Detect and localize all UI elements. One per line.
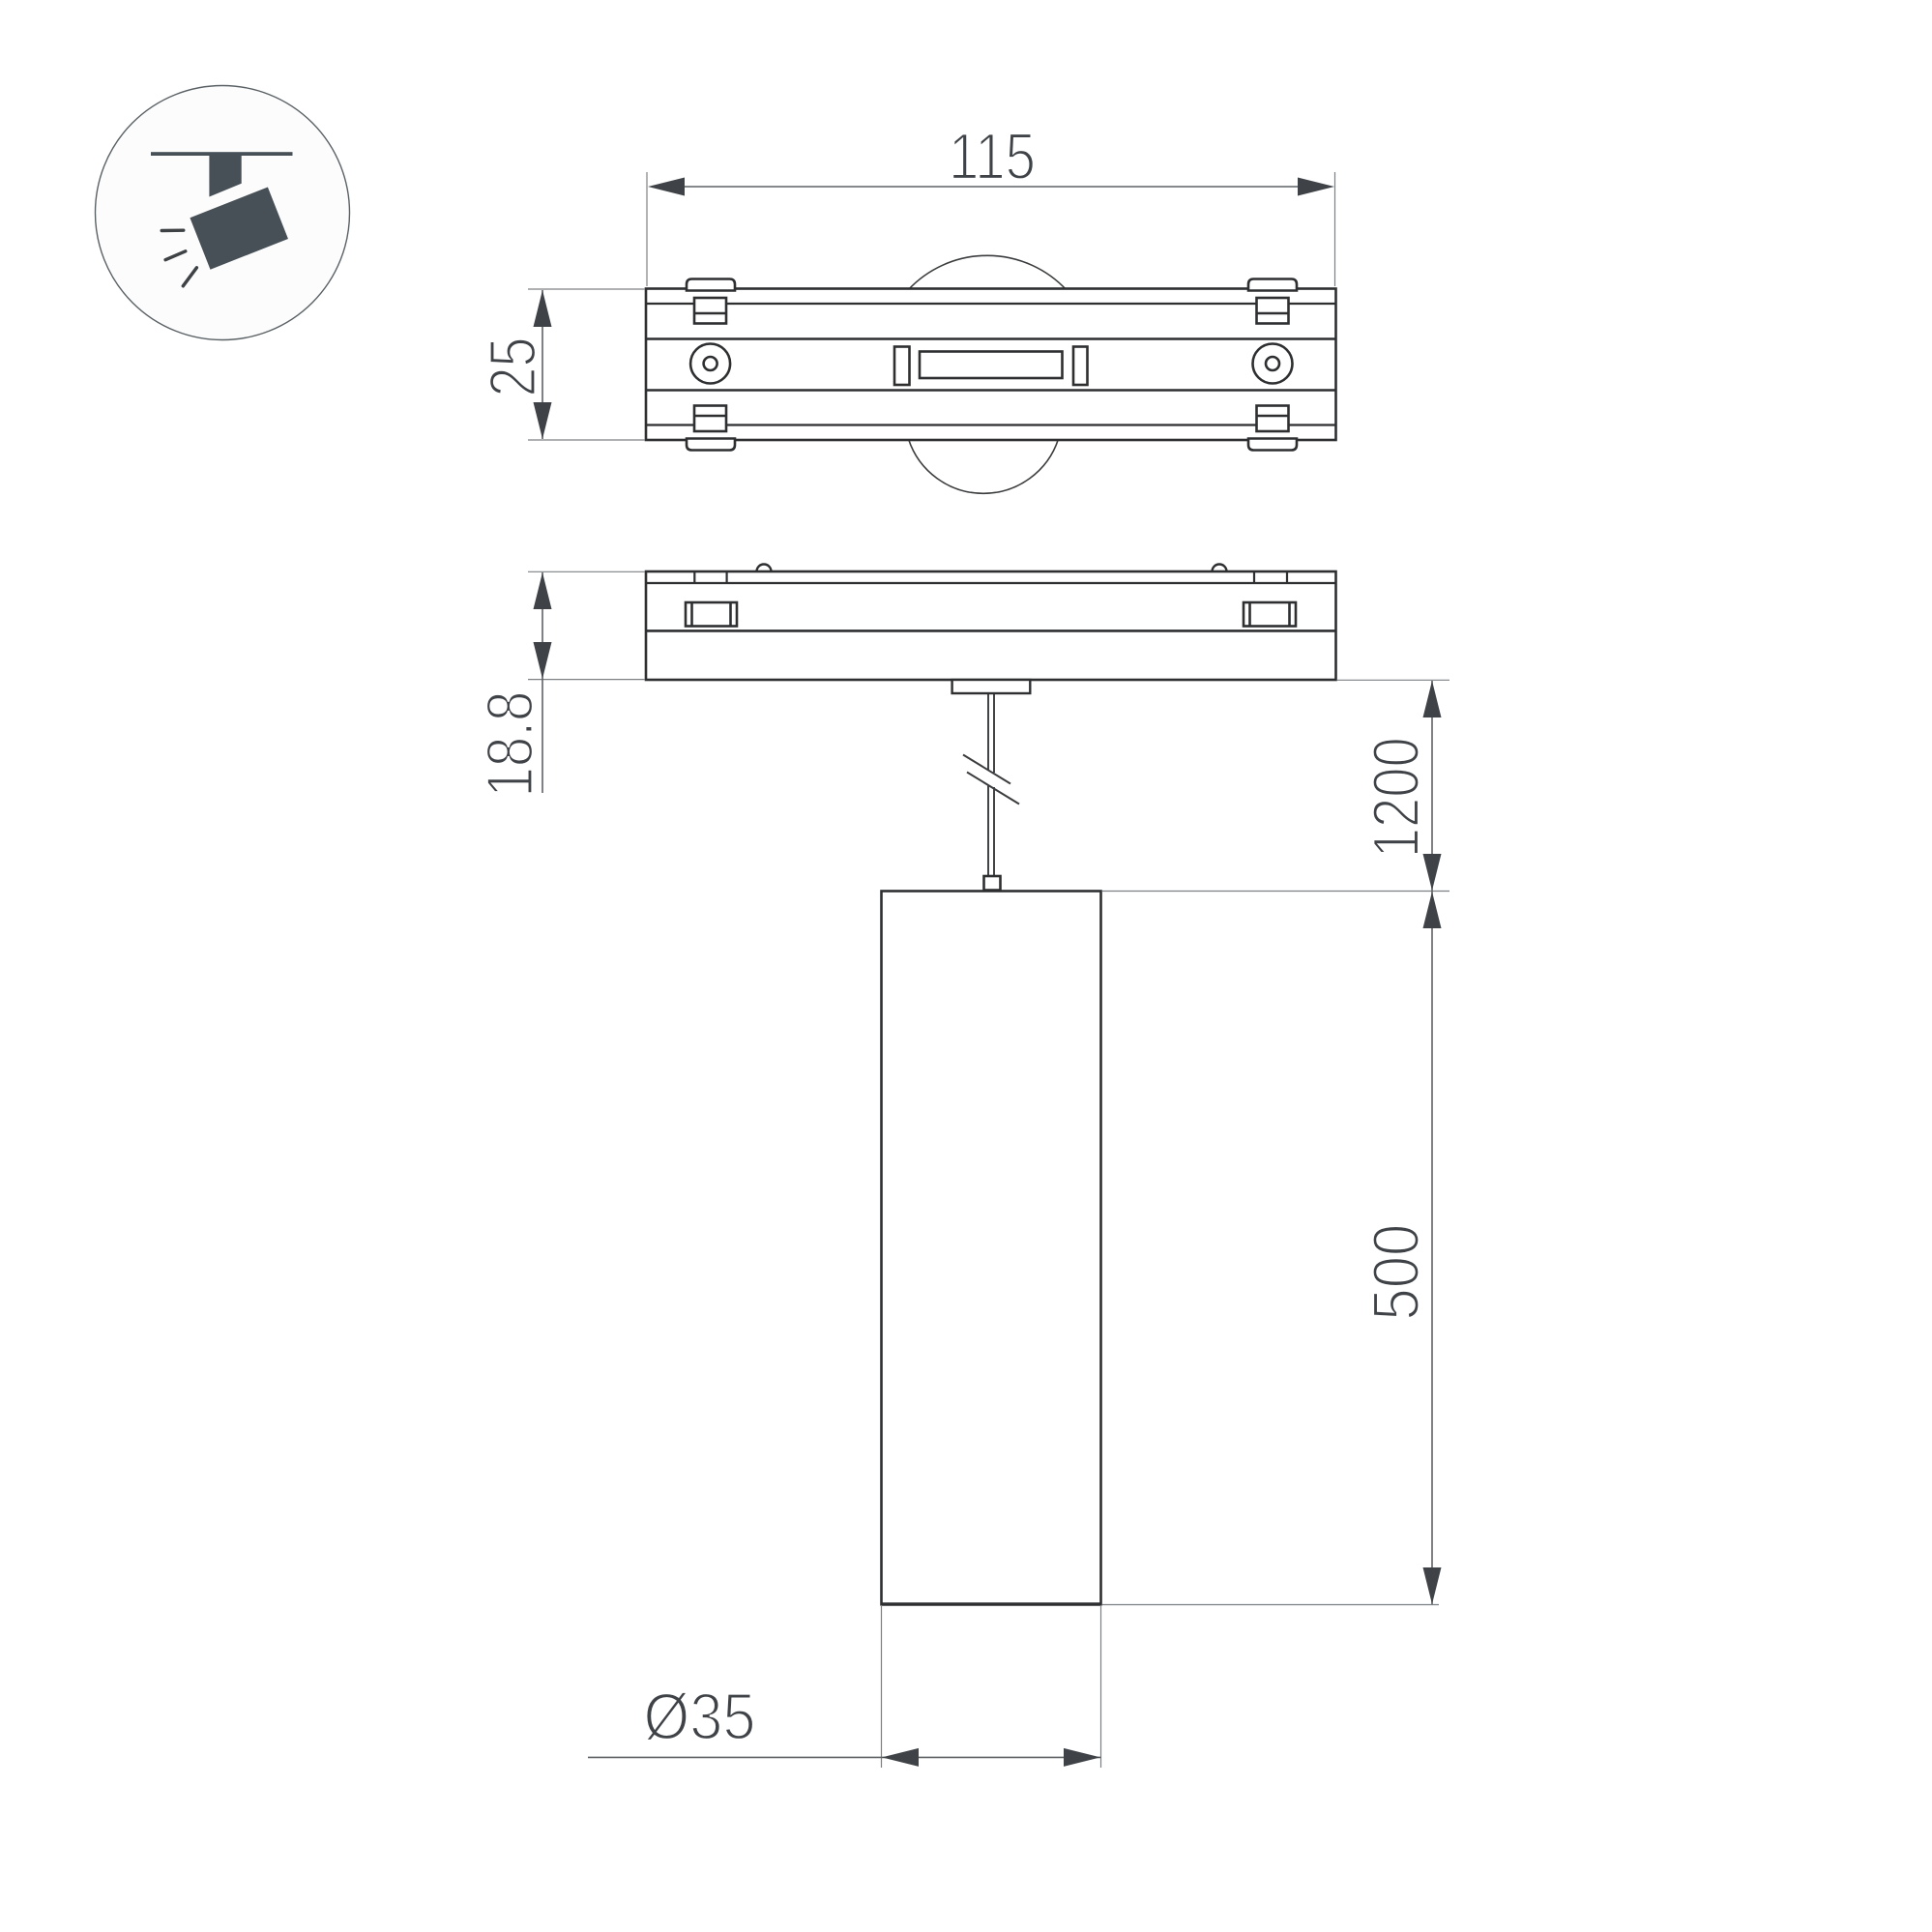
- svg-text:25: 25: [477, 337, 550, 397]
- svg-text:Ø35: Ø35: [644, 1681, 756, 1754]
- svg-text:500: 500: [1360, 1224, 1433, 1321]
- svg-text:115: 115: [949, 120, 1036, 193]
- svg-text:1200: 1200: [1360, 737, 1433, 858]
- svg-text:18.8: 18.8: [474, 691, 547, 798]
